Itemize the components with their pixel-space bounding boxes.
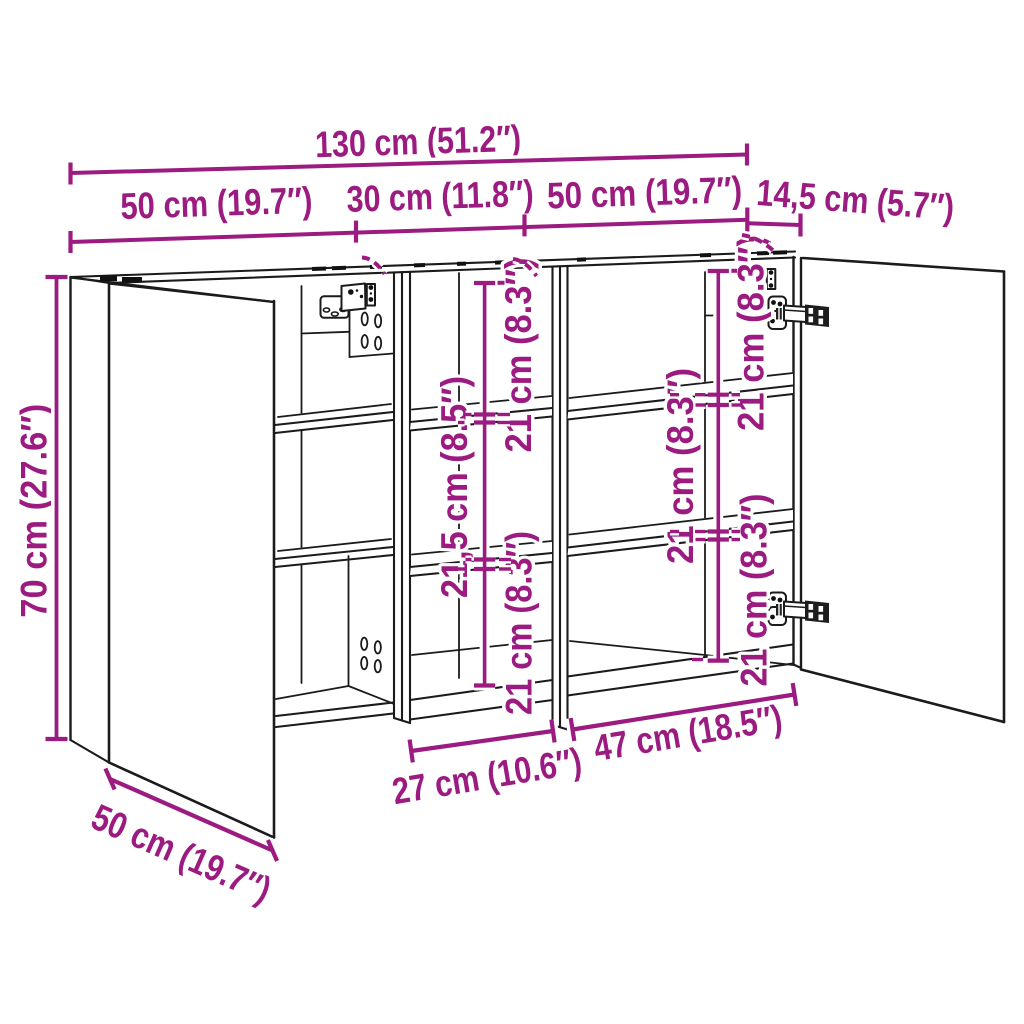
svg-text:21,5 cm (8.5″): 21,5 cm (8.5″) xyxy=(434,376,475,598)
svg-text:50 cm (19.7″): 50 cm (19.7″) xyxy=(120,180,313,227)
svg-text:70 cm (27.6″): 70 cm (27.6″) xyxy=(14,404,55,618)
svg-text:50 cm (19.7″): 50 cm (19.7″) xyxy=(546,169,742,216)
svg-text:21 cm (8.3″): 21 cm (8.3″) xyxy=(734,494,775,687)
svg-text:21 cm (8.3″): 21 cm (8.3″) xyxy=(660,368,701,564)
svg-text:30 cm (11.8″): 30 cm (11.8″) xyxy=(346,173,534,220)
